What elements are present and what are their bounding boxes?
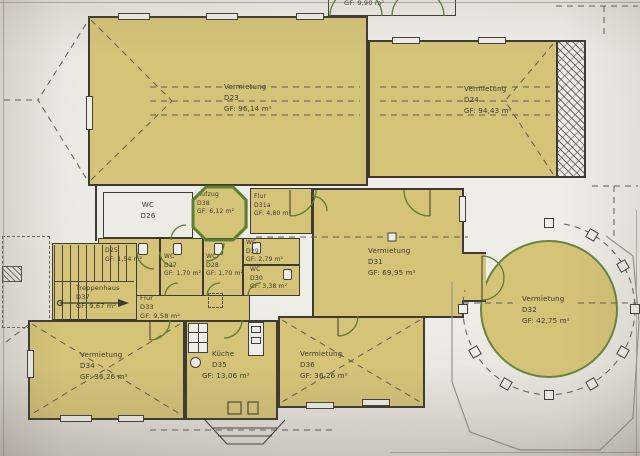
room-number: D37 — [76, 293, 120, 302]
room-number: D33 — [140, 303, 180, 312]
room-type: Flur — [140, 294, 180, 303]
wall-section-hatch — [2, 266, 22, 282]
room-number: D26 — [128, 211, 168, 222]
room-area: GF: 1,70 m² — [206, 270, 243, 279]
room-type: Vermietung — [300, 349, 348, 360]
room-d22-label: D22 GF: 9,90 m² — [344, 0, 384, 8]
frame-line-bottom — [390, 452, 640, 453]
room-type: Vermietung — [80, 350, 128, 361]
room-area: GF: 9,67 m² — [76, 302, 120, 311]
room-number: D23 — [224, 93, 272, 104]
shaft-duct — [251, 326, 261, 333]
room-area: GF: 1,54 m² — [105, 256, 142, 265]
room-d27-label: WC D27 GF: 1,70 m² — [164, 253, 201, 279]
window — [86, 96, 93, 130]
room-type: Vermietung — [464, 84, 512, 95]
room-type: Flur — [254, 193, 291, 202]
room-type: Vermietung — [368, 246, 416, 257]
room-number: D32 — [522, 305, 570, 316]
room-type: Vermietung — [522, 294, 570, 305]
shaft-duct — [251, 337, 261, 344]
room-area: GF: 9,58 m² — [140, 312, 180, 321]
window — [118, 13, 150, 20]
room-area: GF: 36,26 m² — [80, 372, 128, 383]
room-number: D28 — [206, 262, 243, 271]
frame-line-left — [3, 0, 4, 456]
room-d32-label: Vermietung D32 GF: 42,75 m² — [522, 294, 570, 328]
kitchen-counter-icon — [188, 323, 208, 353]
room-type: Aufzug — [197, 191, 234, 200]
room-d29-label: WC D29 GF: 2,79 m² — [246, 239, 283, 265]
kitchen-sink-icon — [190, 357, 201, 368]
room-type: WC — [128, 200, 168, 211]
room-d38-label: Aufzug D38 GF: 6,12 m² — [197, 191, 234, 217]
room-number: D38 — [197, 200, 234, 209]
window — [27, 350, 34, 378]
room-d34-label: Vermietung D34 GF: 36,26 m² — [80, 350, 128, 384]
room-area: GF: 36,26 m² — [300, 371, 348, 382]
skylight-dashed-square — [208, 293, 223, 308]
room-number: D25 — [105, 247, 142, 256]
room-d24 — [368, 40, 558, 178]
room-type: WC — [164, 253, 201, 262]
room-d23-label: Vermietung D23 GF: 96,14 m² — [224, 82, 272, 116]
room-area: GF: 94,43 m² — [464, 106, 512, 117]
room-number: D27 — [164, 262, 201, 271]
room-d31a-label: Flur D31a GF: 4,80 m² — [254, 193, 291, 219]
room-area: GF: 13,06 m² — [202, 371, 250, 382]
room-area: GF: 69,95 m² — [368, 268, 416, 279]
room-area: GF: 3,38 m² — [250, 283, 287, 292]
balcony-dashed-outline — [2, 236, 50, 328]
stairwell-d37-label: Treppenhaus D37 GF: 9,67 m² — [76, 284, 120, 311]
room-area: GF: 4,80 m² — [254, 210, 291, 219]
room-area: GF: 1,70 m² — [164, 270, 201, 279]
room-d31-label: Vermietung D31 GF: 69,95 m² — [368, 246, 416, 280]
window — [478, 37, 506, 44]
room-type: WC — [206, 253, 243, 262]
window — [392, 37, 420, 44]
frame-line-right — [636, 210, 637, 456]
floorplan-photo: D22 GF: 9,90 m² Vermietung D23 GF: 96,14… — [0, 0, 640, 456]
room-d24-label: Vermietung D24 GF: 94,43 m² — [464, 84, 512, 118]
corridor-d33-label: Flur D33 GF: 9,58 m² — [140, 294, 180, 321]
room-type: WC — [246, 239, 283, 248]
room-d36-label: Vermietung D36 GF: 36,26 m² — [300, 349, 348, 383]
window — [306, 402, 334, 409]
room-number: D34 — [80, 361, 128, 372]
window — [118, 415, 144, 422]
room-type: Treppenhaus — [76, 284, 120, 293]
frame-line-top — [0, 2, 640, 3]
room-d26-label: WC D26 — [128, 200, 168, 222]
room-number: D30 — [250, 275, 287, 284]
room-number: D24 — [464, 95, 512, 106]
window — [459, 196, 466, 222]
window — [60, 415, 92, 422]
room-d28-label: WC D28 GF: 1,70 m² — [206, 253, 243, 279]
room-area: GF: 6,12 m² — [197, 208, 234, 217]
room-type: WC — [250, 266, 287, 275]
window — [206, 13, 238, 20]
room-number: D36 — [300, 360, 348, 371]
window — [296, 13, 324, 20]
hatched-wall-d24 — [556, 40, 586, 178]
room-d30-label: WC D30 GF: 3,38 m² — [250, 266, 287, 292]
passage-d31-d32 — [462, 252, 486, 302]
room-number: D31 — [368, 257, 416, 268]
room-d25-label: D25 GF: 1,54 m² — [105, 247, 142, 264]
room-number: D35 — [212, 360, 250, 371]
room-area: GF: 9,90 m² — [344, 0, 384, 8]
room-d35-label: Küche D35 GF: 13,06 m² — [212, 349, 250, 383]
room-type: Küche — [212, 349, 250, 360]
room-area: GF: 96,14 m² — [224, 104, 272, 115]
room-area: GF: 2,79 m² — [246, 256, 283, 265]
room-number: D29 — [246, 248, 283, 257]
room-area: GF: 42,75 m² — [522, 316, 570, 327]
room-number: D31a — [254, 202, 291, 211]
room-type: Vermietung — [224, 82, 272, 93]
window — [362, 399, 390, 406]
